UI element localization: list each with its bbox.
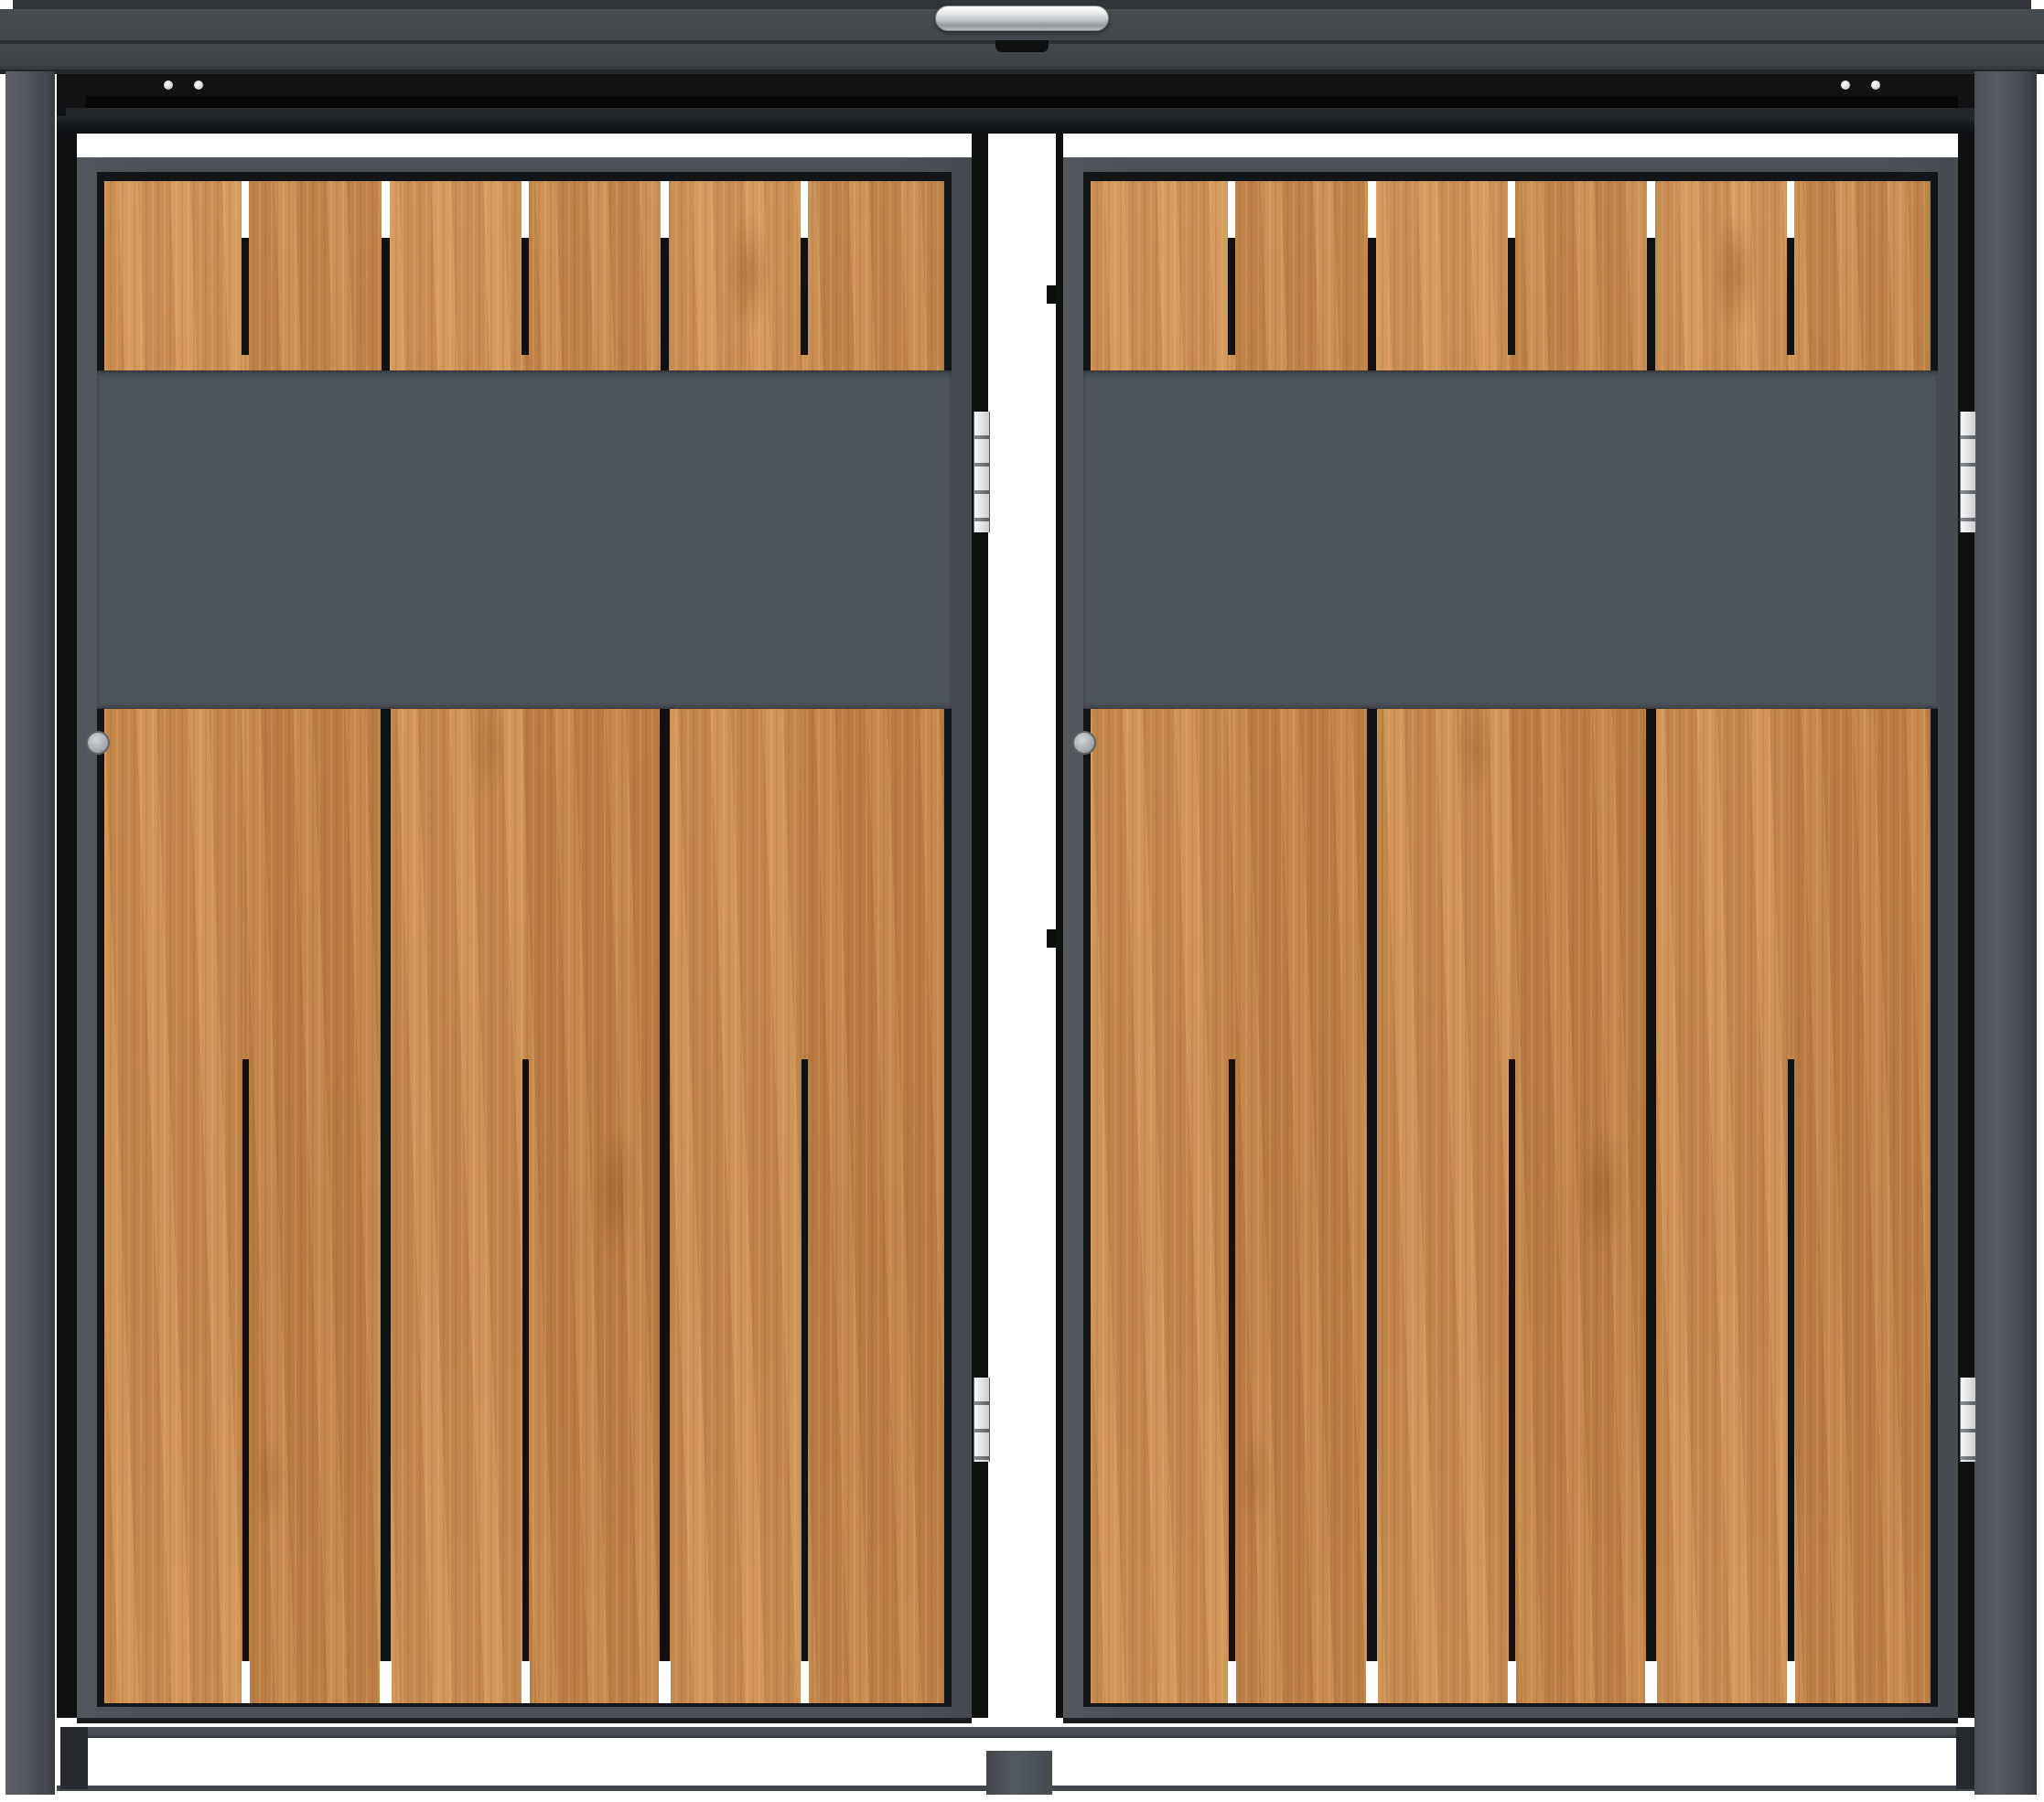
door-right-top-gap-white-5 xyxy=(1787,181,1794,238)
door-left-top-gap-white-1 xyxy=(242,181,249,238)
door-left-lower-gap-white-1 xyxy=(242,1661,250,1703)
door-right-lower-gap-white-2 xyxy=(1366,1661,1378,1703)
base-leg-bracket-1 xyxy=(60,1727,88,1789)
door-right-top-gap-white-4 xyxy=(1647,181,1655,238)
handle-recess-notch xyxy=(995,40,1049,52)
door-right-lower-gap-white-1 xyxy=(1228,1661,1236,1703)
door-right-lower-gap-black-5 xyxy=(1788,1059,1794,1661)
post-left xyxy=(5,71,55,1795)
hinge-right-door-lower xyxy=(1960,1378,1976,1462)
door-left-top-gap-black-1 xyxy=(242,238,249,355)
door-right-lower-gap-black-4 xyxy=(1646,709,1656,1661)
door-right-pivot-disc xyxy=(1072,731,1096,755)
door-right-lower-gap-white-5 xyxy=(1787,1661,1795,1703)
door-right-bottom-shadow xyxy=(1063,1718,1958,1723)
door-right-top-gap-black-5 xyxy=(1787,238,1794,355)
center-post-foot xyxy=(986,1751,1052,1795)
door-right-top-gap-black-2 xyxy=(1368,238,1376,370)
door-gap-strip-3 xyxy=(1056,134,1063,1718)
door-left-top-gap-black-3 xyxy=(522,238,529,355)
door-left-top-gap-black-5 xyxy=(801,238,808,355)
screw-dot-2 xyxy=(194,80,203,90)
product-render-stage xyxy=(0,0,2044,1802)
center-latch-1 xyxy=(1047,285,1056,304)
door-right-top-gap-white-3 xyxy=(1508,181,1515,238)
door-right-lower-gap-white-4 xyxy=(1645,1661,1657,1703)
door-left-lower-gap-black-5 xyxy=(801,1059,808,1661)
door-right-lower-gap-black-2 xyxy=(1367,709,1377,1661)
door-gap-strip-2 xyxy=(972,134,988,1718)
door-left-lower-gap-black-2 xyxy=(381,709,391,1661)
door-left-top-gap-black-2 xyxy=(382,238,390,370)
hinge-right-door-upper xyxy=(1960,412,1976,532)
door-left-top-gap-white-4 xyxy=(661,181,669,238)
door-right-lower-gap-black-1 xyxy=(1229,1059,1235,1661)
post-right xyxy=(1974,71,2037,1795)
screw-dot-1 xyxy=(164,80,173,90)
door-gap-strip-4 xyxy=(1958,134,1974,1718)
center-latch-2 xyxy=(1047,929,1056,948)
door-right-anthracite-band xyxy=(1083,370,1938,709)
door-left-lower-gap-white-2 xyxy=(380,1661,392,1703)
door-right-top-gap-black-3 xyxy=(1508,238,1515,355)
door-left-top-gap-white-2 xyxy=(382,181,390,238)
door-gap-strip-1 xyxy=(57,134,77,1718)
door-right-top-gap-white-1 xyxy=(1228,181,1235,238)
hinge-left-door-upper xyxy=(974,412,990,532)
screw-dot-3 xyxy=(1841,80,1850,90)
door-left-lower-gap-black-1 xyxy=(242,1059,249,1661)
door-left-pivot-disc xyxy=(86,731,110,755)
hinge-left-door-lower xyxy=(974,1378,990,1462)
door-left-top-gap-white-3 xyxy=(522,181,529,238)
screw-dot-4 xyxy=(1871,80,1880,90)
door-right-lower-gap-white-3 xyxy=(1508,1661,1516,1703)
post-center xyxy=(988,73,1050,1795)
door-left-lower-gap-white-5 xyxy=(801,1661,809,1703)
door-left-anthracite-band xyxy=(97,370,952,709)
lid-handle xyxy=(935,5,1109,31)
door-right-top-gap-white-2 xyxy=(1368,181,1376,238)
door-right-lower-gap-black-3 xyxy=(1509,1059,1515,1661)
door-left-top-gap-black-4 xyxy=(661,238,669,370)
door-left-lower-gap-black-3 xyxy=(522,1059,529,1661)
door-left-bottom-shadow xyxy=(77,1718,972,1723)
door-left-top-gap-white-5 xyxy=(801,181,808,238)
door-right-top-gap-black-1 xyxy=(1228,238,1235,355)
door-left-lower-gap-black-4 xyxy=(660,709,670,1661)
door-left-lower-gap-white-4 xyxy=(659,1661,671,1703)
door-left-lower-gap-white-3 xyxy=(522,1661,530,1703)
door-right-top-gap-black-4 xyxy=(1647,238,1655,370)
